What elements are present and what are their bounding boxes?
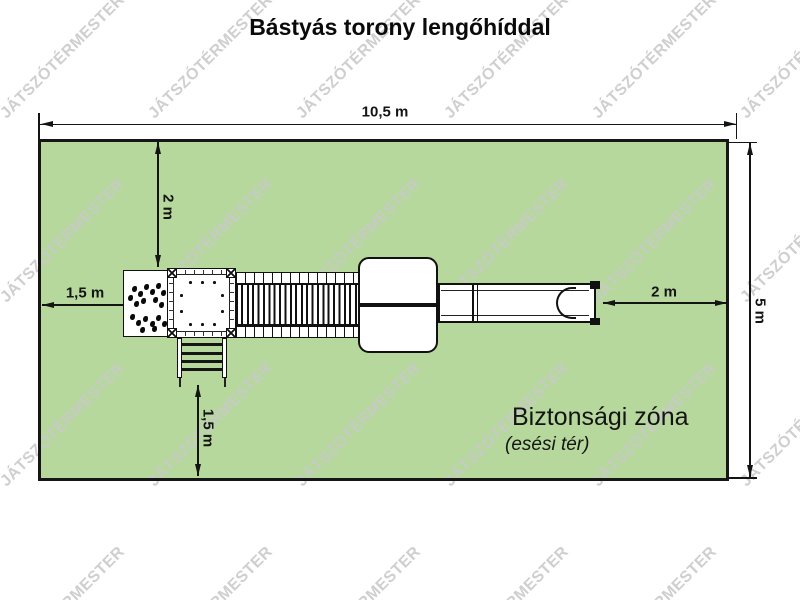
corner-post-icon <box>167 268 177 278</box>
bolt-dot <box>201 323 204 326</box>
dim-label-total-width: 10,5 m <box>362 104 409 121</box>
arrow-right-icon <box>724 121 736 127</box>
bolt-dot <box>201 281 204 284</box>
climbing-hold <box>134 301 139 307</box>
bolt-dot <box>221 294 224 297</box>
watermark-text: JÁTSZÓTÉRMESTER <box>589 543 720 600</box>
arrow-left-icon <box>603 300 615 306</box>
dim-line <box>40 124 736 126</box>
climbing-hold <box>132 286 137 292</box>
watermark-text: JÁTSZÓTÉRMESTER <box>0 543 129 600</box>
climbing-wall <box>123 270 169 337</box>
dim-tick <box>729 477 757 479</box>
bolt-dot <box>180 310 183 313</box>
watermark-text: JÁTSZÓTÉRMESTER <box>737 543 800 600</box>
arrow-left-icon <box>42 302 54 308</box>
dim-line <box>42 304 123 306</box>
bridge-handrail-bottom <box>236 326 359 338</box>
climbing-hold <box>144 284 149 290</box>
climbing-hold <box>159 302 164 308</box>
climbing-hold <box>136 320 141 326</box>
climbing-hold <box>138 291 143 297</box>
page-title: Bástyás torony lengőhíddal <box>0 14 800 41</box>
bolt-dot <box>221 310 224 313</box>
platform-edge-ticks <box>177 270 226 275</box>
bolt-dot <box>189 323 192 326</box>
slide <box>438 281 600 325</box>
bolt-dot <box>213 323 216 326</box>
ladder-rail <box>222 338 227 378</box>
climbing-hold <box>156 315 161 321</box>
ladder-rung <box>182 368 222 371</box>
dim-label-bottom-clearance: 1,5 m <box>200 409 217 447</box>
slide-section-joint <box>477 285 479 321</box>
dim-label-total-depth: 5 m <box>752 298 769 324</box>
climbing-hold <box>161 290 166 296</box>
access-ladder <box>176 338 228 388</box>
arrow-down-icon <box>747 465 753 477</box>
slide-end-cap <box>590 318 600 326</box>
roofed-tower <box>358 257 438 353</box>
watermark-text: JÁTSZÓTÉRMESTER <box>441 543 572 600</box>
platform-edge-ticks <box>229 278 234 328</box>
ladder-rung <box>182 360 222 363</box>
dim-label-left-clearance: 1,5 m <box>66 285 104 302</box>
corner-post-icon <box>226 328 236 338</box>
dim-tick <box>729 142 757 144</box>
climbing-hold <box>128 295 133 301</box>
bridge-planks <box>236 285 359 325</box>
watermark-text: JÁTSZÓTÉRMESTER <box>293 543 424 600</box>
arrow-up-icon <box>747 143 753 155</box>
corner-post-icon <box>167 328 177 338</box>
climbing-hold <box>140 327 145 333</box>
ladder-leg <box>224 378 226 387</box>
watermark-text: JÁTSZÓTÉRMESTER <box>737 175 800 306</box>
safety-zone-sublabel: (esési tér) <box>505 434 589 456</box>
arrow-right-icon <box>715 300 727 306</box>
climbing-hold <box>153 297 158 303</box>
dim-label-top-clearance: 2 m <box>160 194 177 220</box>
dim-label-right-clearance: 2 m <box>651 284 677 301</box>
climbing-hold <box>141 298 146 304</box>
roof-ridge-line <box>360 303 436 307</box>
bolt-dot <box>189 281 192 284</box>
ladder-rung <box>182 352 222 355</box>
arrow-down-icon <box>195 464 201 476</box>
climbing-hold <box>156 283 161 289</box>
bolt-dot <box>180 294 183 297</box>
climbing-hold <box>150 289 155 295</box>
bolt-dot <box>213 281 216 284</box>
safety-zone-label: Biztonsági zóna <box>512 403 689 432</box>
arrow-down-icon <box>155 255 161 267</box>
dim-line <box>603 302 727 304</box>
climbing-hold <box>152 326 157 332</box>
arrow-left-icon <box>41 121 53 127</box>
tower-platform <box>167 268 236 338</box>
climbing-hold <box>143 316 148 322</box>
platform-edge-ticks <box>169 278 174 328</box>
ladder-leg <box>179 378 181 387</box>
ladder-rung <box>182 343 222 346</box>
platform-edge-ticks <box>177 331 226 336</box>
arrow-up-icon <box>155 142 161 154</box>
bridge-handrail-top <box>236 272 359 284</box>
playground-plan-diagram: JÁTSZÓTÉRMESTERJÁTSZÓTÉRMESTERJÁTSZÓTÉRM… <box>0 0 800 600</box>
dim-tick <box>38 113 40 139</box>
corner-post-icon <box>226 268 236 278</box>
climbing-hold <box>130 314 135 320</box>
slide-section-joint <box>472 285 474 321</box>
climbing-hold <box>162 321 167 327</box>
watermark-text: JÁTSZÓTÉRMESTER <box>145 543 276 600</box>
slide-end-cap <box>590 281 600 289</box>
swing-bridge <box>236 272 359 338</box>
